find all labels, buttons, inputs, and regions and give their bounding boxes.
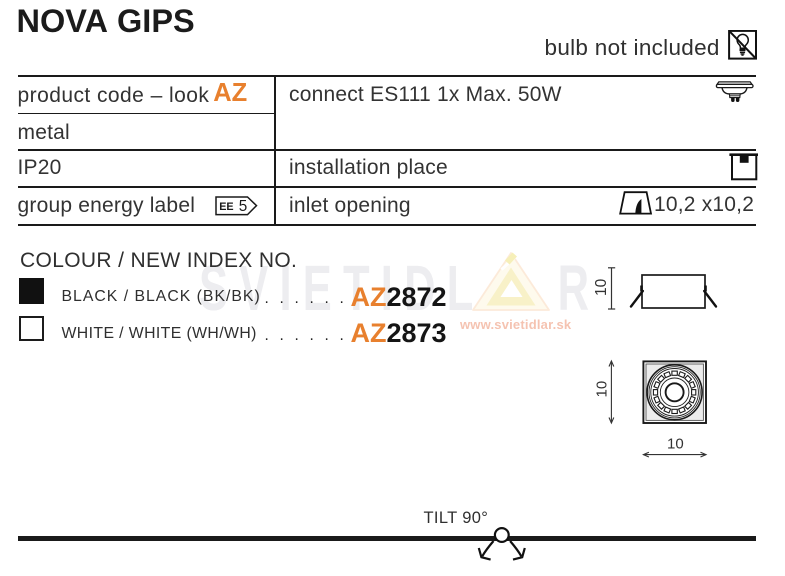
svg-text:www.svietidlar.sk: www.svietidlar.sk xyxy=(459,317,572,332)
svg-text:EE: EE xyxy=(219,201,233,213)
svg-text:10: 10 xyxy=(594,381,611,398)
svg-text:10: 10 xyxy=(667,435,684,452)
svg-text:10: 10 xyxy=(593,278,610,296)
svg-text:5: 5 xyxy=(239,197,248,214)
